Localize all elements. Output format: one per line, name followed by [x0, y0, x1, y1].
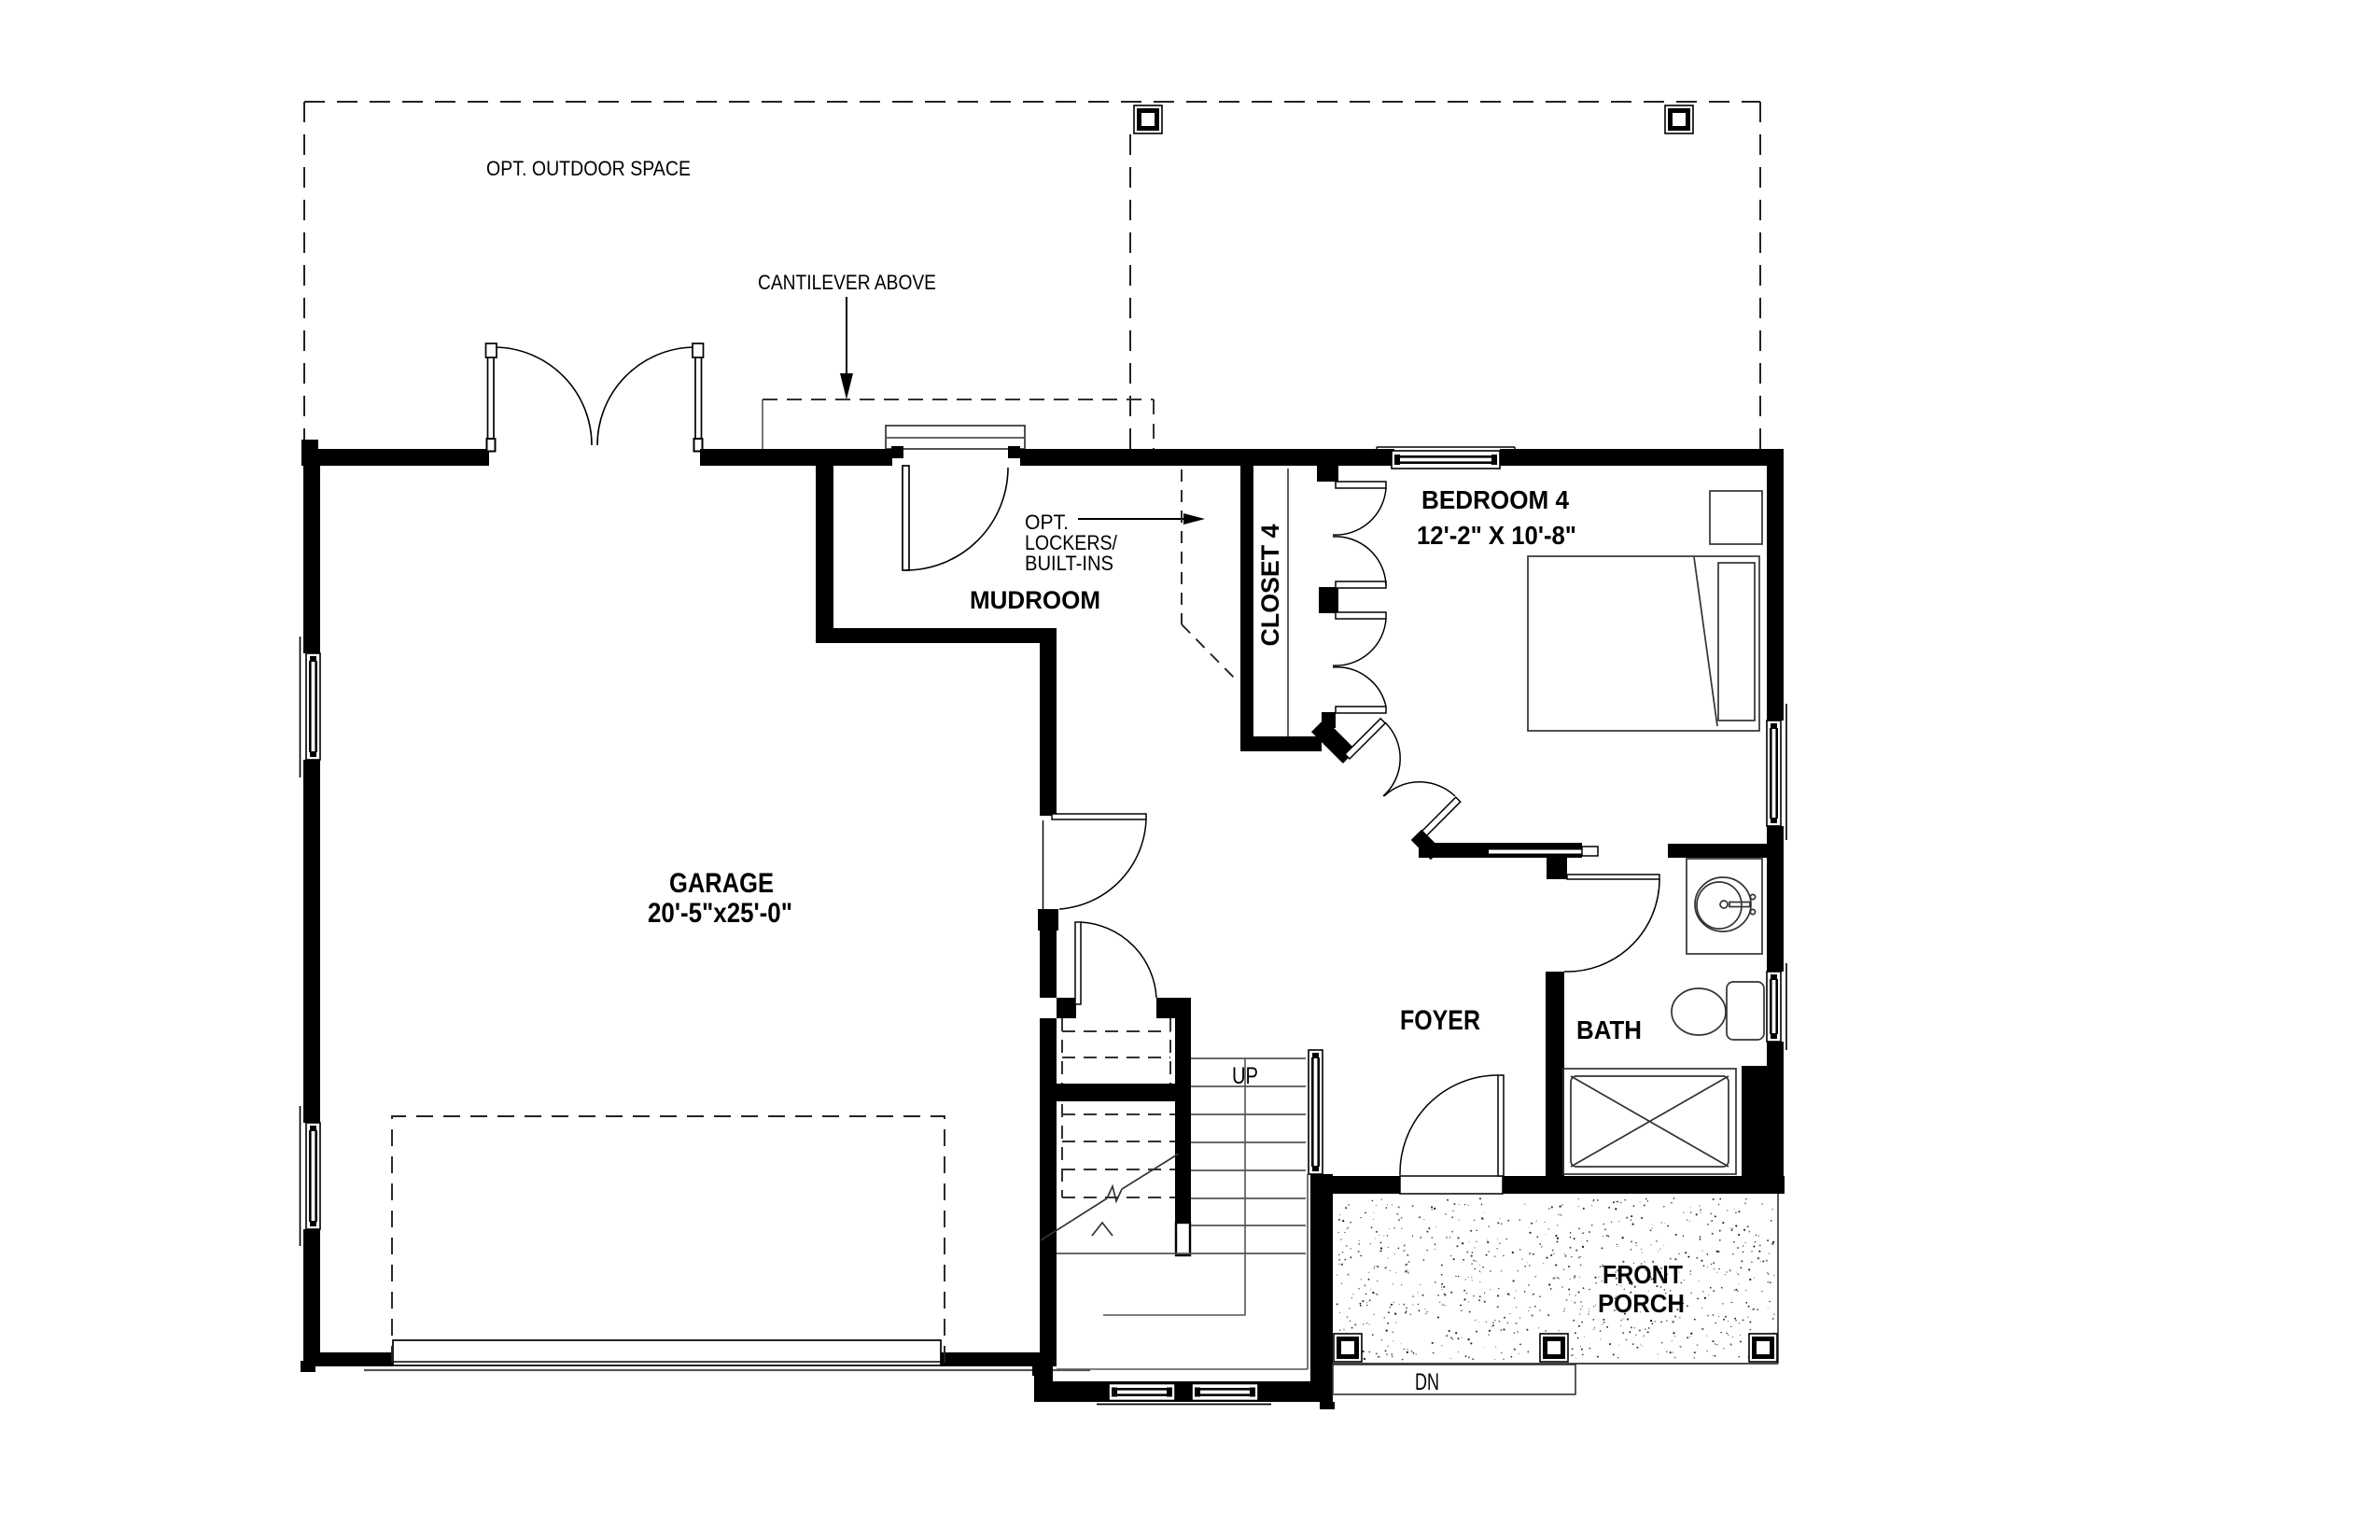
svg-text:GARAGE: GARAGE [669, 868, 774, 899]
svg-text:CLOSET 4: CLOSET 4 [1256, 525, 1284, 647]
svg-text:20'-5"x25'-0": 20'-5"x25'-0" [648, 898, 792, 929]
svg-text:FOYER: FOYER [1400, 1005, 1480, 1036]
svg-text:BEDROOM 4: BEDROOM 4 [1421, 485, 1569, 514]
svg-text:DN: DN [1415, 1369, 1439, 1395]
svg-text:PORCH: PORCH [1598, 1289, 1685, 1318]
svg-text:12'-2" X 10'-8": 12'-2" X 10'-8" [1417, 521, 1576, 550]
svg-text:BUILT-INS: BUILT-INS [1025, 552, 1113, 575]
svg-text:OPT. OUTDOOR SPACE: OPT. OUTDOOR SPACE [486, 157, 691, 180]
svg-text:MUDROOM: MUDROOM [970, 586, 1100, 614]
svg-text:FRONT: FRONT [1603, 1260, 1683, 1289]
svg-text:BATH: BATH [1576, 1015, 1642, 1044]
svg-text:CANTILEVER ABOVE: CANTILEVER ABOVE [758, 271, 936, 294]
